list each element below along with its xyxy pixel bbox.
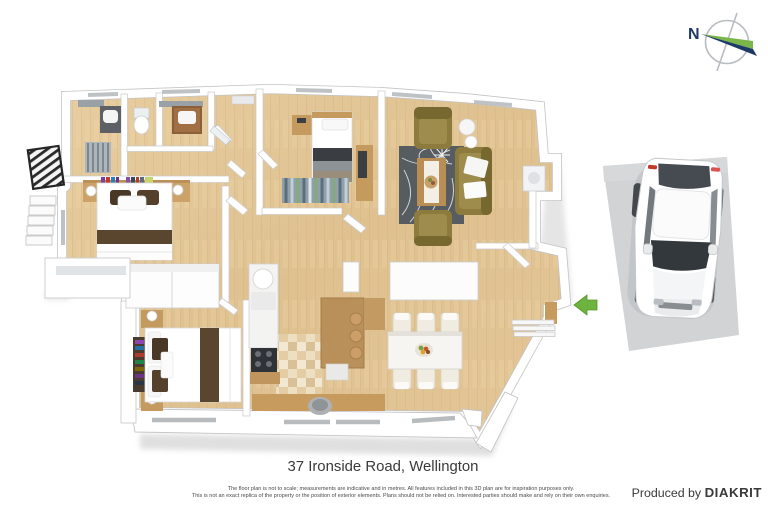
svg-text:Produced by DIAKRIT: Produced by DIAKRIT xyxy=(632,485,762,500)
svg-text:This is not an exact replica o: This is not an exact replica of the prop… xyxy=(192,493,611,499)
svg-text:37 Ironside Road, Wellington: 37 Ironside Road, Wellington xyxy=(288,459,479,475)
svg-text:N: N xyxy=(688,26,700,43)
svg-text:The floor plan is not to scale: The floor plan is not to scale; measurem… xyxy=(228,486,575,492)
